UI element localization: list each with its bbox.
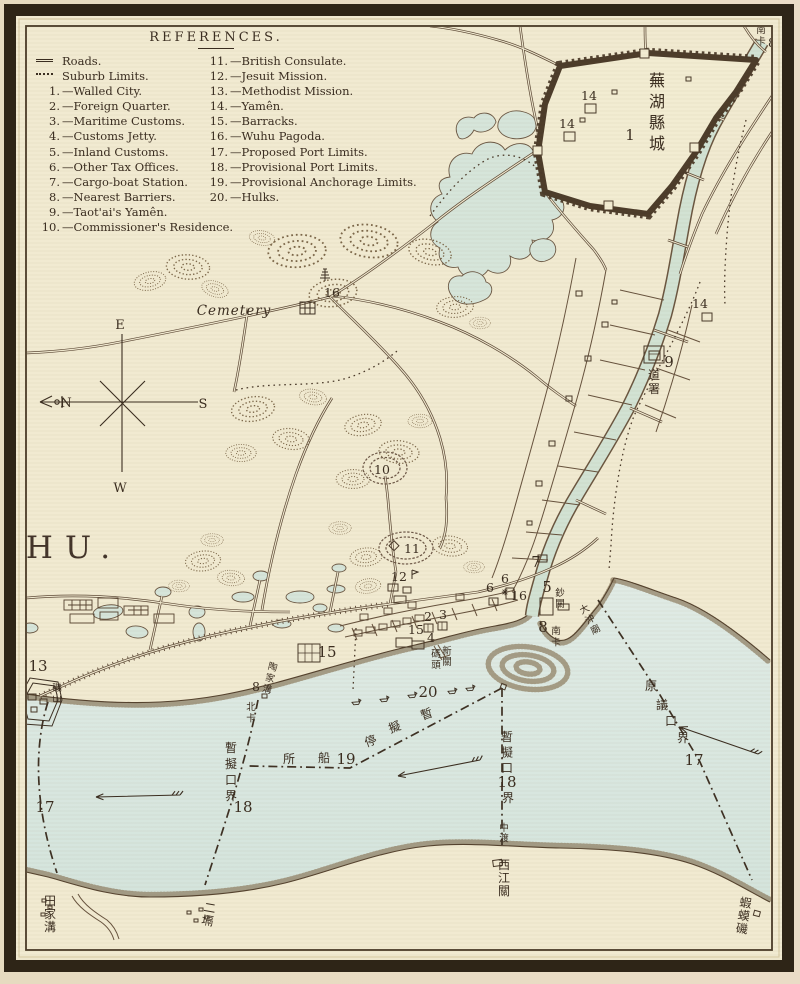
legend-number: 15. bbox=[204, 114, 230, 129]
marker-6b: 6 bbox=[486, 580, 494, 595]
compass-w: W bbox=[113, 481, 127, 496]
marker-6a: 6 bbox=[501, 571, 509, 586]
marker-18b: 18 bbox=[497, 773, 516, 791]
marker-16a: 16 bbox=[324, 285, 340, 300]
marker-16b: 16 bbox=[511, 588, 527, 603]
cemetery-label: Cemetery bbox=[197, 303, 272, 319]
legend-label: —Taot'ai's Yamên. bbox=[62, 205, 167, 220]
marker-13: 13 bbox=[28, 657, 47, 675]
marker-4: 4 bbox=[427, 630, 435, 645]
marker-14a: 14 bbox=[581, 88, 597, 103]
compass-s: S bbox=[199, 397, 208, 412]
legend-number: 14. bbox=[204, 99, 230, 114]
legend-item: 12.—Jesuit Mission. bbox=[204, 69, 396, 84]
legend-label: —Foreign Quarter. bbox=[62, 99, 171, 114]
marker-17a: 17 bbox=[35, 798, 54, 816]
jishan-label: 磯山 bbox=[52, 682, 62, 705]
marker-15a: 15 bbox=[408, 622, 424, 637]
marker-14b: 14 bbox=[559, 116, 575, 131]
marker-12: 12 bbox=[391, 569, 407, 584]
legend-item: 18.—Provisional Port Limits. bbox=[204, 160, 396, 175]
legend-item: 1.—Walled City. bbox=[36, 84, 204, 99]
legend-item: Suburb Limits. bbox=[36, 69, 204, 84]
legend-number: 2. bbox=[36, 99, 62, 114]
beika-label: 北卡 bbox=[246, 702, 256, 725]
marker-1: 1 bbox=[625, 126, 635, 144]
jetty-name-left: 碼頭 bbox=[431, 649, 441, 671]
marker-3: 3 bbox=[439, 607, 447, 622]
marker-8c: 8 bbox=[538, 618, 548, 636]
legend-label: —Cargo-boat Station. bbox=[62, 175, 188, 190]
legend-number: 11. bbox=[204, 54, 230, 69]
legend-item: Roads. bbox=[36, 54, 204, 69]
legend-label: —Barracks. bbox=[230, 114, 298, 129]
legend-label: —Nearest Barriers. bbox=[62, 190, 176, 205]
orig-limit-r2: 議 bbox=[656, 698, 668, 712]
marker-9: 9 bbox=[664, 353, 674, 371]
legend-label: —Wuhu Pagoda. bbox=[230, 129, 325, 144]
legend-label: —Provisional Anchorage Limits. bbox=[230, 175, 417, 190]
marker-10: 10 bbox=[374, 462, 390, 477]
legend-number: 8. bbox=[36, 190, 62, 205]
compass-e: E bbox=[115, 318, 125, 333]
legend-item: 9.—Taot'ai's Yamên. bbox=[36, 205, 204, 220]
legend-columns: Roads.Suburb Limits.1.—Walled City.2.—Fo… bbox=[36, 54, 396, 235]
legend-column-left: Roads.Suburb Limits.1.—Walled City.2.—Fo… bbox=[36, 54, 204, 235]
orig-limit-r4: 界 bbox=[677, 731, 689, 745]
legend-label: Roads. bbox=[62, 54, 101, 69]
legend-number: 1. bbox=[36, 84, 62, 99]
nanka-top: 南卡 bbox=[756, 24, 766, 48]
marker-20: 20 bbox=[418, 683, 437, 701]
legend-item: 11.—British Consulate. bbox=[204, 54, 396, 69]
marker-18a: 18 bbox=[233, 798, 252, 816]
xijiangguan-label: 西江關 bbox=[498, 858, 510, 898]
jetty-name-right: 新關 bbox=[442, 645, 452, 668]
legend-number: 7. bbox=[36, 175, 62, 190]
legend-item: 4.—Customs Jetty. bbox=[36, 129, 204, 144]
zhongdu-label: 中渡 bbox=[499, 822, 509, 845]
marker-5: 5 bbox=[542, 578, 552, 596]
legend-number: 18. bbox=[204, 160, 230, 175]
legend-number: 19. bbox=[204, 175, 230, 190]
legend-item: 6.—Other Tax Offices. bbox=[36, 160, 204, 175]
legend-label: —Inland Customs. bbox=[62, 145, 169, 160]
orig-limit-r3: 口 bbox=[665, 714, 677, 728]
marker-14c: 14 bbox=[692, 296, 708, 311]
marker-17b: 17 bbox=[684, 751, 703, 769]
legend-item: 3.—Maritime Customs. bbox=[36, 114, 204, 129]
legend-number: 6. bbox=[36, 160, 62, 175]
compass-n: N bbox=[60, 396, 71, 411]
legend-number: 4. bbox=[36, 129, 62, 144]
chaoguan-label: 鈔關 bbox=[555, 587, 565, 610]
nanka-south: 南卡 bbox=[551, 625, 561, 649]
legend-item: 5.—Inland Customs. bbox=[36, 145, 204, 160]
legend-label: Suburb Limits. bbox=[62, 69, 149, 84]
marker-19: 19 bbox=[336, 750, 355, 768]
prov-limit-right-2: 界 bbox=[502, 791, 514, 805]
tianjiagou-label: 田家溝 bbox=[44, 894, 56, 934]
marker-2: 2 bbox=[424, 609, 432, 624]
legend-label: —Other Tax Offices. bbox=[62, 160, 179, 175]
legend-title-rule bbox=[198, 48, 234, 49]
legend-item: 10.—Commissioner's Residence. bbox=[36, 220, 204, 235]
roads-symbol bbox=[36, 59, 53, 62]
taotai-label: 道署 bbox=[648, 368, 660, 396]
anchorage-char-1: 所 bbox=[283, 752, 295, 766]
legend-label: —British Consulate. bbox=[230, 54, 346, 69]
legend-item: 17.—Proposed Port Limits. bbox=[204, 145, 396, 160]
legend-label: —Provisional Port Limits. bbox=[230, 160, 378, 175]
marker-11: 11 bbox=[404, 541, 420, 556]
prov-limit-right: 暫擬口 bbox=[501, 729, 513, 775]
city-gate-west bbox=[533, 146, 542, 155]
shrine-star-icon bbox=[502, 589, 508, 595]
city-gate-east bbox=[690, 143, 699, 152]
legend-number: 3. bbox=[36, 114, 62, 129]
legend-number: 12. bbox=[204, 69, 230, 84]
legend-item: 13.—Methodist Mission. bbox=[204, 84, 396, 99]
dots-symbol bbox=[36, 69, 53, 75]
legend-item: 2.—Foreign Quarter. bbox=[36, 99, 204, 114]
orig-limit-r1: 原 bbox=[645, 679, 657, 693]
legend-item: 15.—Barracks. bbox=[204, 114, 396, 129]
legend-number: 5. bbox=[36, 145, 62, 160]
marker-8b: 8 bbox=[252, 679, 260, 694]
legend-item: 16.—Wuhu Pagoda. bbox=[204, 129, 396, 144]
city-gate-north bbox=[640, 49, 649, 58]
city-gate-south bbox=[604, 201, 613, 210]
legend-item: 14.—Yamên. bbox=[204, 99, 396, 114]
map-page: WUHU.蕪湖縣城1141414南卡89道署Cemetery1610111215… bbox=[0, 0, 800, 984]
legend-label: —Proposed Port Limits. bbox=[230, 145, 368, 160]
legend-number: 9. bbox=[36, 205, 62, 220]
legend-label: —Walled City. bbox=[62, 84, 142, 99]
legend-label: —Jesuit Mission. bbox=[230, 69, 327, 84]
legend-item: 7.—Cargo-boat Station. bbox=[36, 175, 204, 190]
legend-number: 16. bbox=[204, 129, 230, 144]
legend-number: 13. bbox=[204, 84, 230, 99]
legend-number: 10. bbox=[36, 220, 62, 235]
legend-label: —Yamên. bbox=[230, 99, 284, 114]
legend-label: —Hulks. bbox=[230, 190, 279, 205]
legend-title: REFERENCES. bbox=[36, 30, 396, 45]
anchorage-char-2: 船 bbox=[318, 751, 330, 765]
legend-column-right: 11.—British Consulate.12.—Jesuit Mission… bbox=[204, 54, 396, 235]
marker-7: 7 bbox=[531, 553, 541, 571]
legend-item: 20.—Hulks. bbox=[204, 190, 396, 205]
references-legend: REFERENCES. Roads.Suburb Limits.1.—Walle… bbox=[36, 30, 396, 235]
legend-label: —Methodist Mission. bbox=[230, 84, 353, 99]
legend-item: 19.—Provisional Anchorage Limits. bbox=[204, 175, 396, 190]
legend-label: —Maritime Customs. bbox=[62, 114, 185, 129]
marker-15b: 15 bbox=[317, 643, 336, 661]
legend-number: 20. bbox=[204, 190, 230, 205]
legend-number: 17. bbox=[204, 145, 230, 160]
legend-label: —Customs Jetty. bbox=[62, 129, 157, 144]
legend-item: 8.—Nearest Barriers. bbox=[36, 190, 204, 205]
